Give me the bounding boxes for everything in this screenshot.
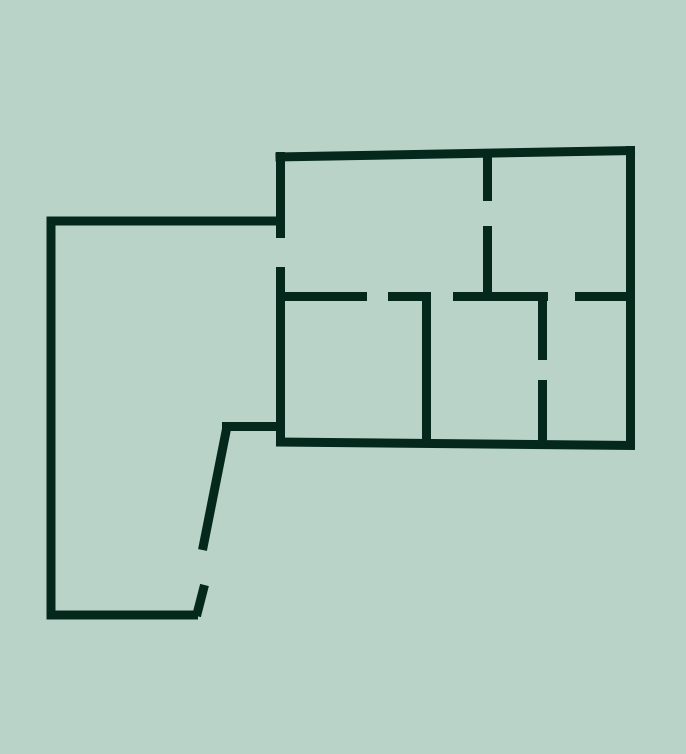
floorplan-canvas bbox=[0, 0, 686, 754]
floorplan bbox=[0, 0, 686, 754]
wall-left-room-slanted-wall bbox=[203, 429, 227, 550]
wall-left-room-door-leaf bbox=[197, 585, 205, 616]
wall-right-block-bottom-wall bbox=[276, 442, 635, 446]
wall-right-block-top-wall bbox=[276, 151, 636, 158]
